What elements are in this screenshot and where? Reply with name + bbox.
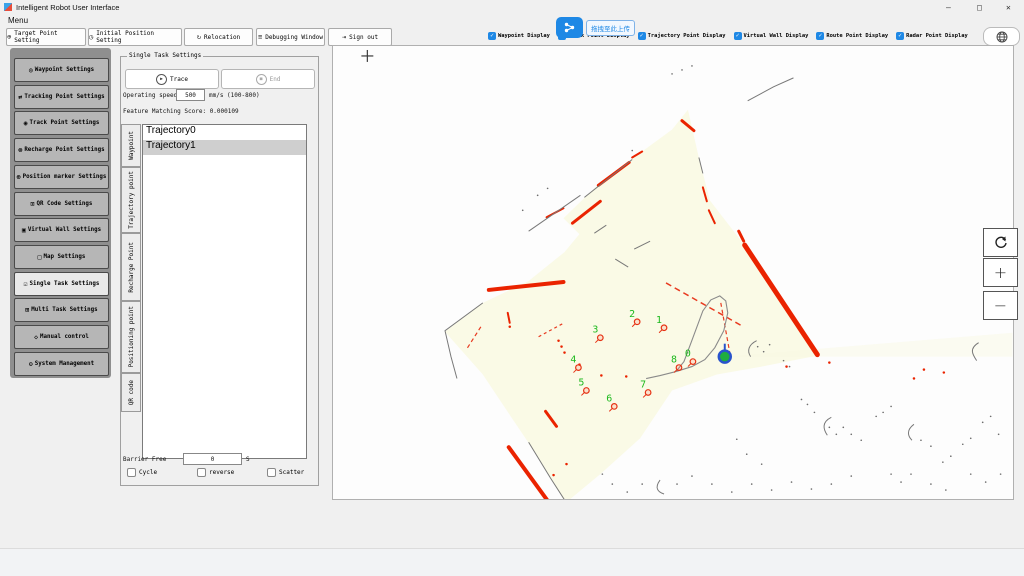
sign-out-button[interactable]: ⇥Sign out: [328, 28, 392, 46]
barrier-free-label: Barrier Free: [123, 456, 166, 463]
target-point-setting-button[interactable]: ⊕Target Point Setting: [6, 28, 86, 46]
windows-taskbar: ^ 英 18:36 2025/12/26: [0, 548, 1024, 576]
sidebar-item-virtual-wall-settings[interactable]: ▣Virtual Wall Settings: [14, 218, 109, 242]
checkbox-icon: ✓: [734, 32, 742, 40]
button-label: Target Point Setting: [14, 30, 85, 44]
sidebar-item-position-marker-settings[interactable]: ⊕Position marker Settings: [14, 165, 109, 189]
operating-speed-input[interactable]: [176, 89, 205, 101]
button-label: Initial Position Setting: [96, 30, 181, 44]
sidebar-item-system-management[interactable]: ⚙System Management: [14, 352, 109, 376]
checkbox-label: Virtual Wall Display: [744, 33, 809, 39]
sidebar-item-multi-task-settings[interactable]: ⊞Multi Task Settings: [14, 298, 109, 322]
globe-icon: [996, 31, 1008, 43]
checkbox-icon: ✓: [638, 32, 646, 40]
title-bar: Intelligent Robot User Interface — □ ✕: [0, 0, 1024, 13]
checkbox-cycle[interactable]: Cycle: [127, 468, 157, 477]
debugging-window-button[interactable]: ≡Debugging Window: [256, 28, 325, 46]
recharge-point-settings-icon: ⊗: [18, 146, 22, 154]
sidebar-item-label: Manual control: [40, 334, 89, 340]
sidebar-item-waypoint-settings[interactable]: ◎Waypoint Settings: [14, 58, 109, 82]
zoom-out-button[interactable]: −: [983, 291, 1018, 320]
debugging-window-icon: ≡: [258, 33, 262, 41]
sign-out-icon: ⇥: [342, 33, 346, 41]
sidebar-item-label: System Management: [35, 361, 94, 367]
tab-label: Trajectory point: [128, 171, 135, 229]
app-icon: [4, 3, 12, 11]
option-label: Scatter: [279, 469, 304, 476]
waypoint-settings-icon: ◎: [29, 66, 33, 74]
status-bar: Battery voltage: 57% 22.5V Current: -6.8…: [0, 500, 1024, 548]
sidebar-item-label: Single Task Settings: [30, 281, 100, 287]
sidebar-item-manual-control[interactable]: ◇Manual control: [14, 325, 109, 349]
relocation-icon: ↻: [197, 33, 201, 41]
waypoint-label: 2: [629, 309, 635, 320]
crosshair-cursor: [361, 50, 373, 62]
tab-label: Recharge Point: [128, 242, 135, 293]
minimize-icon[interactable]: —: [946, 3, 951, 12]
waypoint-label: 5: [578, 378, 584, 389]
system-management-icon: ⚙: [29, 360, 33, 368]
checkbox-label: Trajectory Point Display: [648, 33, 726, 39]
trajectory-list[interactable]: Trajectory0Trajectory1: [142, 124, 307, 459]
map-drawing: 012345678: [333, 46, 1013, 499]
rotate-map-button[interactable]: [983, 228, 1018, 257]
stop-icon: ■: [256, 74, 267, 85]
upload-toast[interactable]: 拖拽至此上传: [556, 17, 635, 38]
checkbox-icon: ✓: [816, 32, 824, 40]
checkbox-label: Radar Point Display: [906, 33, 968, 39]
menu-bar: Menu: [0, 13, 1024, 26]
button-label: Sign out: [349, 34, 378, 41]
sidebar-item-label: Map Settings: [44, 254, 86, 260]
tab-qr-code[interactable]: QR code: [121, 373, 141, 412]
tab-label: Waypoint: [128, 131, 135, 160]
initial-position-setting-icon: ◷: [89, 33, 93, 41]
track-point-settings-icon: ◉: [24, 119, 28, 127]
virtual-wall-settings-icon: ▣: [22, 226, 26, 234]
position-marker-settings-icon: ⊕: [17, 173, 21, 181]
waypoint-label: 8: [671, 355, 677, 366]
checkbox-label: Waypoint Display: [498, 33, 550, 39]
share-icon: [556, 17, 583, 38]
rotate-icon: [993, 235, 1009, 251]
tracking-point-settings-icon: ⇄: [18, 93, 22, 101]
button-label: Debugging Window: [265, 34, 323, 41]
sidebar-item-label: Tracking Point Settings: [24, 94, 104, 100]
map-settings-icon: □: [38, 253, 42, 261]
initial-position-setting-button[interactable]: ◷Initial Position Setting: [88, 28, 182, 46]
menu-item[interactable]: Menu: [8, 16, 28, 25]
trace-button[interactable]: ▶ Trace: [125, 69, 219, 89]
tab-label: Positioning point: [128, 306, 135, 367]
checkbox-radar-point-display[interactable]: ✓Radar Point Display: [896, 32, 968, 40]
language-globe-button[interactable]: [983, 27, 1020, 46]
maximize-icon[interactable]: □: [977, 3, 982, 12]
single-task-settings-icon: ☑: [24, 280, 28, 288]
checkbox-reverse[interactable]: reverse: [197, 468, 234, 477]
barrier-free-input[interactable]: [183, 453, 242, 465]
sidebar-item-label: Position marker Settings: [23, 174, 107, 180]
sidebar-item-label: Virtual Wall Settings: [28, 227, 101, 233]
tab-waypoint[interactable]: Waypoint: [121, 124, 141, 167]
operating-speed-label: Operating speed: [123, 92, 177, 99]
end-button-label: End: [270, 76, 281, 83]
operating-speed-unit: mm/s (100-800): [209, 92, 260, 99]
tab-positioning-point[interactable]: Positioning point: [121, 301, 141, 373]
checkbox-scatter[interactable]: Scatter: [267, 468, 304, 477]
desktop: Intelligent Robot User Interface — □ ✕ M…: [0, 0, 1024, 576]
window-title: Intelligent Robot User Interface: [16, 3, 119, 12]
button-label: Relocation: [204, 34, 240, 41]
tab-recharge-point[interactable]: Recharge Point: [121, 233, 141, 301]
upload-toast-label: 拖拽至此上传: [586, 20, 635, 36]
feature-matching-score: Feature Matching Score: 0.000109: [123, 108, 239, 115]
checkbox-trajectory-point-display[interactable]: ✓Trajectory Point Display: [638, 32, 726, 40]
manual-control-icon: ◇: [34, 333, 38, 341]
trace-button-label: Trace: [170, 76, 188, 83]
waypoint-label: 1: [656, 315, 662, 326]
waypoint-label: 6: [606, 393, 612, 404]
target-point-setting-icon: ⊕: [7, 33, 11, 41]
sidebar-item-qr-code-settings[interactable]: ⊡QR Code Settings: [14, 192, 109, 216]
end-button[interactable]: ■ End: [221, 69, 315, 89]
tab-trajectory-point[interactable]: Trajectory point: [121, 167, 141, 233]
barrier-free-unit: S: [246, 456, 250, 463]
checkbox-label: Route Point Display: [826, 33, 888, 39]
sidebar-item-label: Multi Task Settings: [31, 307, 97, 313]
close-icon[interactable]: ✕: [1006, 3, 1011, 12]
waypoint-label: 0: [685, 349, 691, 360]
sidebar-item-single-task-settings[interactable]: ☑Single Task Settings: [14, 272, 109, 296]
sidebar-item-label: QR Code Settings: [37, 201, 93, 207]
sidebar-item-recharge-point-settings[interactable]: ⊗Recharge Point Settings: [14, 138, 109, 162]
sidebar-item-tracking-point-settings[interactable]: ⇄Tracking Point Settings: [14, 85, 109, 109]
list-item-trajectory0[interactable]: Trajectory0: [143, 125, 306, 140]
qr-code-settings-icon: ⊡: [31, 200, 35, 208]
checkbox-icon: ✓: [896, 32, 904, 40]
sidebar-item-label: Waypoint Settings: [35, 67, 94, 73]
map-free-space: [445, 110, 817, 499]
checkbox-icon: [197, 468, 206, 477]
relocation-button[interactable]: ↻Relocation: [184, 28, 253, 46]
waypoint-label: 3: [592, 325, 598, 336]
checkbox-waypoint-display[interactable]: ✓Waypoint Display: [488, 32, 550, 40]
sidebar-item-track-point-settings[interactable]: ◉Track Point Settings: [14, 111, 109, 135]
map-canvas[interactable]: 012345678: [332, 45, 1014, 500]
checkbox-icon: [127, 468, 136, 477]
option-label: reverse: [209, 469, 234, 476]
list-item-trajectory1[interactable]: Trajectory1: [143, 140, 306, 155]
waypoint-label: 4: [570, 355, 576, 366]
zoom-in-button[interactable]: +: [983, 258, 1018, 287]
checkbox-icon: [267, 468, 276, 477]
option-label: Cycle: [139, 469, 157, 476]
checkbox-icon: ✓: [488, 32, 496, 40]
sidebar-item-map-settings[interactable]: □Map Settings: [14, 245, 109, 269]
multi-task-settings-icon: ⊞: [25, 306, 29, 314]
play-icon: ▶: [156, 74, 167, 85]
tab-label: QR code: [128, 380, 135, 405]
settings-sidebar: ◎Waypoint Settings⇄Tracking Point Settin…: [10, 48, 111, 378]
sidebar-item-label: Track Point Settings: [30, 120, 100, 126]
panel-title: Single Task Settings: [127, 52, 203, 59]
checkbox-virtual-wall-display[interactable]: ✓Virtual Wall Display: [734, 32, 809, 40]
checkbox-route-point-display[interactable]: ✓Route Point Display: [816, 32, 888, 40]
sidebar-item-label: Recharge Point Settings: [24, 147, 104, 153]
waypoint-label: 7: [640, 379, 646, 390]
